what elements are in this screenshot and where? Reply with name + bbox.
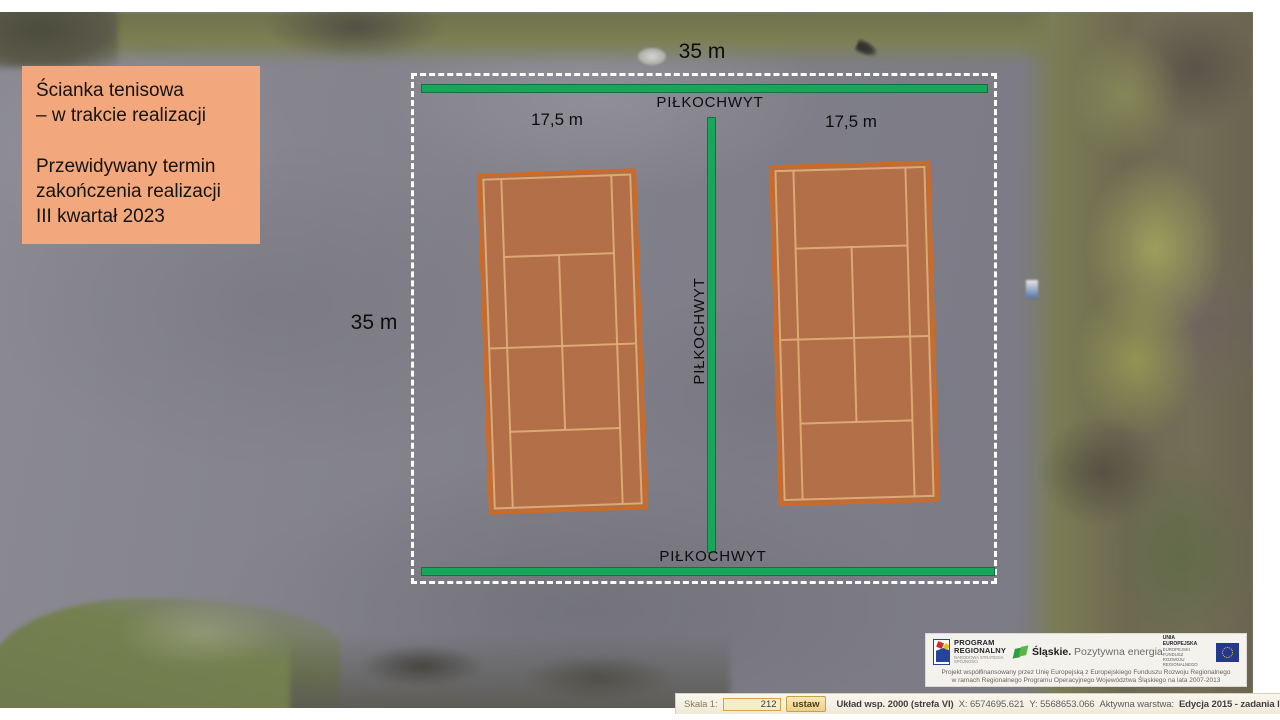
active-layer-value: Edycja 2015 - zadania lokaln xyxy=(1179,699,1280,710)
scale-input[interactable] xyxy=(723,698,781,711)
info-line xyxy=(36,129,246,154)
eu-text-line3: ROZWOJU REGIONALNEGO xyxy=(1163,658,1208,668)
dimension-width-top: 35 m xyxy=(647,40,757,64)
slaskie-logo: Śląskie. Pozytywna energia xyxy=(1013,645,1163,660)
ballstop-net-bottom xyxy=(421,567,995,576)
crs-label: Układ wsp. 2000 (strefa VI) xyxy=(836,699,953,710)
plan-annotations: Ścianka tenisowa – w trakcie realizacji … xyxy=(0,0,1280,720)
ballstop-label-bottom: PIŁKOCHWYT xyxy=(628,548,798,565)
info-line: III kwartał 2023 xyxy=(36,204,246,229)
scale-set-button[interactable]: ustaw xyxy=(786,696,827,712)
dimension-court-left: 17,5 m xyxy=(502,110,612,130)
program-title-line2: REGIONALNY xyxy=(954,647,1013,655)
funding-footnote-line2: w ramach Regionalnego Programu Operacyjn… xyxy=(933,677,1239,685)
info-box: Ścianka tenisowa – w trakcie realizacji … xyxy=(22,66,260,244)
program-regionalny-logo: PROGRAM REGIONALNY NARODOWA STRATEGIA SP… xyxy=(933,639,1013,665)
info-line: Ścianka tenisowa xyxy=(36,78,246,103)
app-window: Ścianka tenisowa – w trakcie realizacji … xyxy=(0,0,1280,720)
active-layer-label: Aktywna warstwa: xyxy=(1100,699,1174,710)
slaskie-tagline: Pozytywna energia xyxy=(1071,646,1163,658)
program-subtitle: NARODOWA STRATEGIA SPÓJNOŚCI xyxy=(954,656,1013,665)
slaskie-brand: Śląskie. xyxy=(1032,646,1071,658)
info-line: – w trakcie realizacji xyxy=(36,103,246,128)
coordinate-x: X: 6574695.621 xyxy=(959,699,1025,710)
leaf-icon xyxy=(1013,645,1028,660)
funding-logos-row: PROGRAM REGIONALNY NARODOWA STRATEGIA SP… xyxy=(933,637,1239,667)
eu-flag-icon xyxy=(1216,643,1239,662)
info-line: zakończenia realizacji xyxy=(36,179,246,204)
dimension-height-left: 35 m xyxy=(338,311,410,335)
dimension-court-right: 17,5 m xyxy=(796,112,906,132)
funding-footnote: Projekt współfinansowany przez Unię Euro… xyxy=(933,669,1239,686)
ballstop-label-middle: PIŁKOCHWYT xyxy=(691,249,709,413)
ballstop-label-top: PIŁKOCHWYT xyxy=(625,94,795,111)
coordinate-y: Y: 5568653.066 xyxy=(1029,699,1094,710)
tennis-court-left xyxy=(477,168,648,514)
eu-logo: UNIA EUROPEJSKA EUROPEJSKI FUNDUSZ ROZWO… xyxy=(1163,636,1239,667)
nss-flag-icon xyxy=(933,639,950,665)
scale-label: Skala 1: xyxy=(684,699,718,710)
funding-banner: PROGRAM REGIONALNY NARODOWA STRATEGIA SP… xyxy=(925,633,1247,687)
ballstop-net-top xyxy=(421,84,988,93)
info-line: Przewidywany termin xyxy=(36,154,246,179)
tennis-court-right xyxy=(769,161,939,506)
status-bar: Skala 1: ustaw Układ wsp. 2000 (strefa V… xyxy=(675,693,1280,714)
